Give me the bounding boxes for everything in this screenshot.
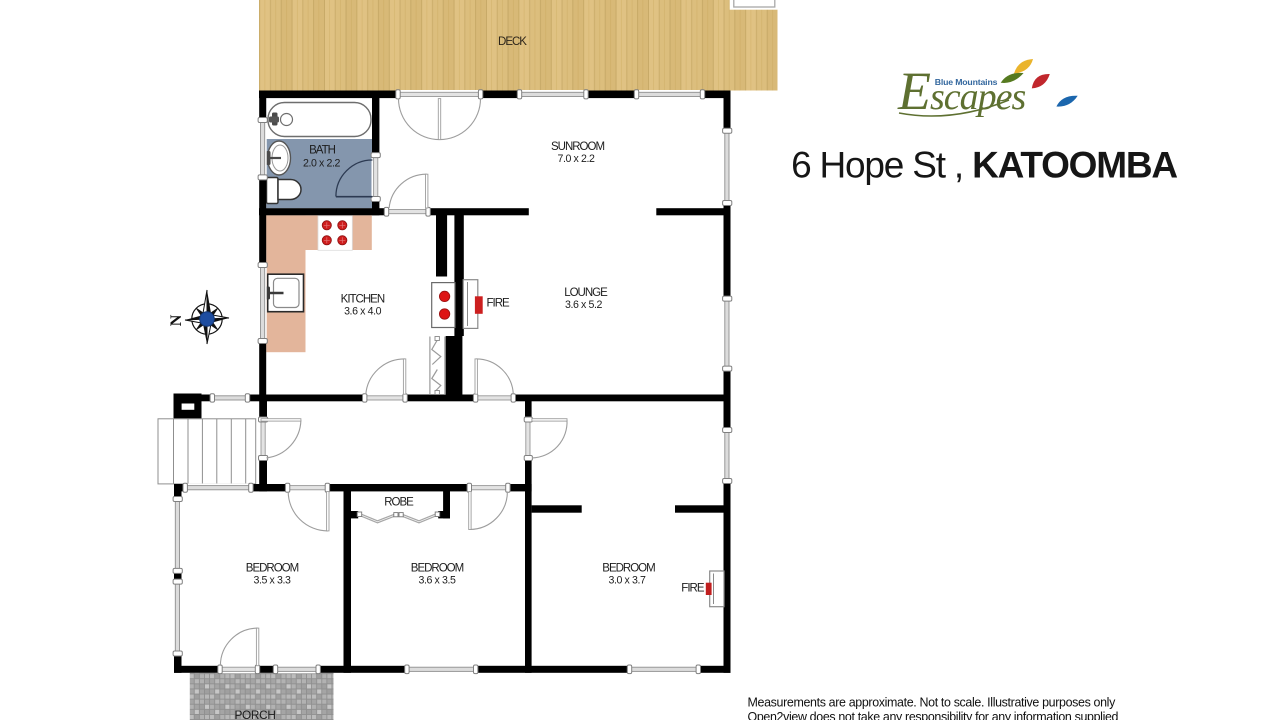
svg-text:ROBE: ROBE — [384, 496, 414, 508]
svg-text:DECK: DECK — [498, 36, 527, 48]
svg-text:SUNROOM: SUNROOM — [551, 141, 604, 153]
svg-text:3.6 x 4.0: 3.6 x 4.0 — [344, 305, 382, 317]
svg-text:7.0 x 2.2: 7.0 x 2.2 — [557, 153, 595, 165]
svg-text:3.5 x 3.3: 3.5 x 3.3 — [253, 575, 291, 587]
svg-text:3.0 x 3.7: 3.0 x 3.7 — [608, 575, 646, 587]
svg-text:KITCHEN: KITCHEN — [341, 293, 385, 305]
svg-text:2.0 x 2.2: 2.0 x 2.2 — [303, 157, 341, 169]
svg-text:PORCH: PORCH — [234, 708, 275, 720]
svg-text:3.6 x 3.5: 3.6 x 3.5 — [418, 575, 456, 587]
svg-text:BEDROOM: BEDROOM — [602, 563, 655, 575]
svg-text:FIRE: FIRE — [681, 583, 705, 595]
svg-text:Escapes: Escapes — [897, 61, 1026, 121]
svg-text:3.6 x 5.2: 3.6 x 5.2 — [565, 299, 603, 311]
svg-text:BATH: BATH — [309, 145, 336, 157]
svg-text:6 Hope St , KATOOMBA: 6 Hope St , KATOOMBA — [791, 145, 1177, 186]
svg-text:Open2view does not take any re: Open2view does not take any responsibili… — [748, 710, 1119, 720]
svg-text:N: N — [168, 314, 185, 326]
svg-text:LOUNGE: LOUNGE — [564, 287, 608, 299]
svg-text:BEDROOM: BEDROOM — [246, 563, 299, 575]
svg-text:BEDROOM: BEDROOM — [411, 563, 464, 575]
svg-text:FIRE: FIRE — [487, 298, 511, 310]
svg-text:Measurements are approximate.: Measurements are approximate. Not to sca… — [748, 696, 1117, 710]
